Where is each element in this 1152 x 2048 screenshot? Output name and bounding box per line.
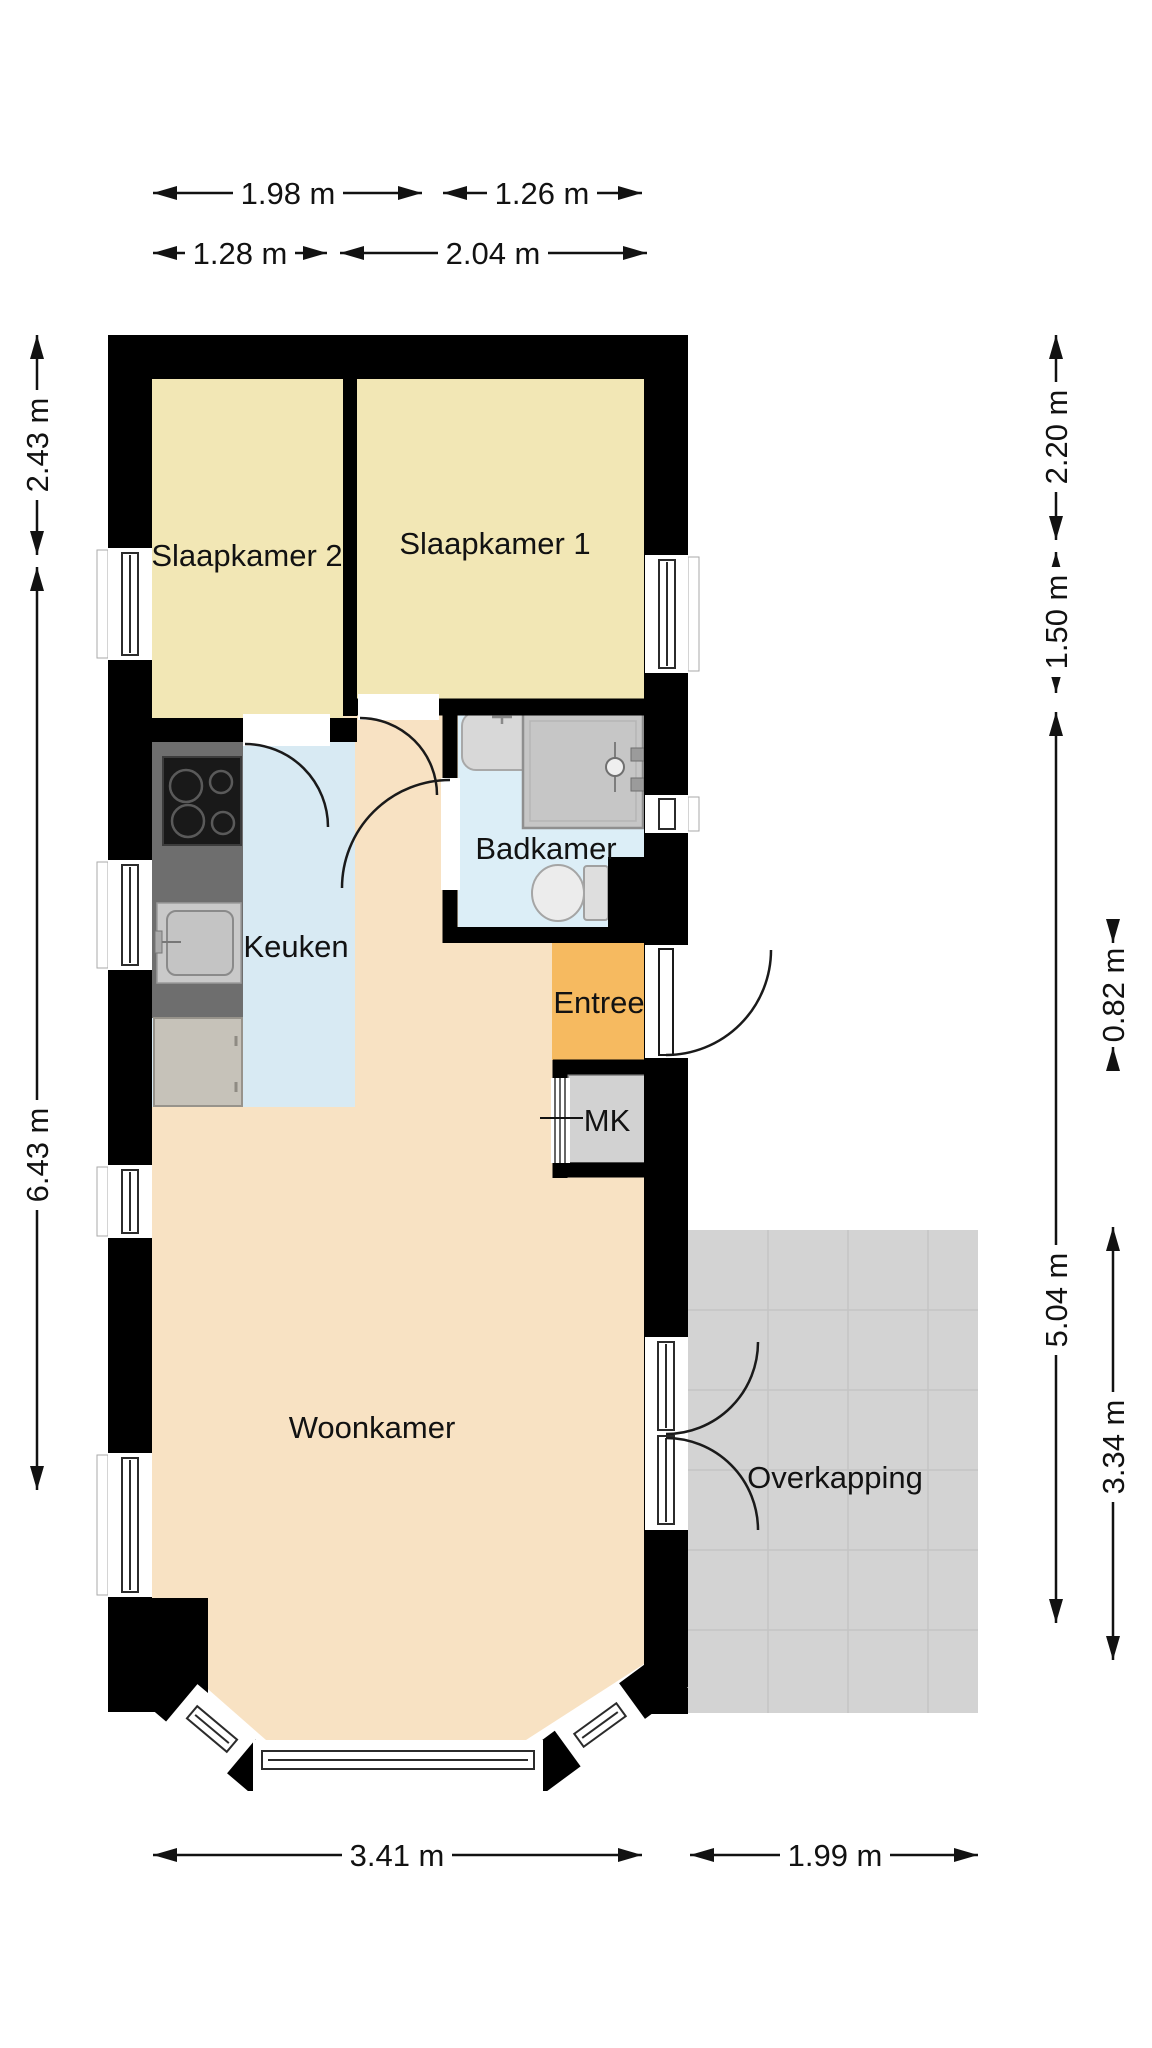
dim-right-canopy: 3.34 m: [1096, 1227, 1131, 1660]
toilet-icon: [532, 865, 608, 921]
dim-right-mid: 1.50 m: [1039, 552, 1074, 693]
window-left-4: [97, 1453, 152, 1597]
door-entree: [645, 945, 771, 1058]
window-left-3: [97, 1165, 152, 1238]
svg-text:5.04 m: 5.04 m: [1039, 1253, 1074, 1348]
svg-text:1.26 m: 1.26 m: [495, 176, 590, 211]
label-woonkamer: Woonkamer: [289, 1410, 456, 1445]
dim-top-row1-right: 1.26 m: [443, 176, 642, 211]
kitchen-sink-icon: [155, 903, 241, 983]
shower-icon: [523, 714, 644, 828]
label-slaapkamer2: Slaapkamer 2: [151, 538, 342, 573]
label-slaapkamer1: Slaapkamer 1: [399, 526, 590, 561]
label-mk: MK: [584, 1103, 631, 1138]
dim-right-upper: 2.20 m: [1039, 335, 1074, 540]
label-entree: Entree: [553, 985, 644, 1020]
dim-top-row2-right: 2.04 m: [340, 236, 647, 271]
kitchen-cabinet: [154, 1018, 242, 1106]
dim-top-row2-left: 1.28 m: [153, 236, 327, 271]
dim-top-row1-left: 1.98 m: [153, 176, 422, 211]
svg-text:6.43 m: 6.43 m: [20, 1108, 55, 1203]
window-bay-front: [253, 1740, 543, 1792]
dim-left-lower: 6.43 m: [20, 567, 55, 1490]
svg-text:3.34 m: 3.34 m: [1096, 1400, 1131, 1495]
dim-bottom-left: 3.41 m: [153, 1838, 642, 1873]
label-overkapping: Overkapping: [747, 1460, 923, 1495]
bay-right-pillar: [644, 1688, 688, 1714]
window-right-badkamer: [645, 795, 699, 833]
svg-text:1.99 m: 1.99 m: [788, 1838, 883, 1873]
dim-bottom-right: 1.99 m: [690, 1838, 978, 1873]
dim-right-small: 0.82 m: [1096, 922, 1131, 1068]
window-left-1: [97, 548, 152, 660]
svg-text:1.98 m: 1.98 m: [241, 176, 336, 211]
dim-left-upper: 2.43 m: [20, 335, 55, 555]
svg-text:2.43 m: 2.43 m: [20, 398, 55, 493]
floor-plan: Slaapkamer 2 Slaapkamer 1 Badkamer Keuke…: [0, 0, 1152, 2048]
svg-text:1.28 m: 1.28 m: [193, 236, 288, 271]
cooktop-icon: [163, 757, 241, 845]
door-mk: [551, 1078, 570, 1163]
label-keuken: Keuken: [243, 929, 348, 964]
svg-text:3.41 m: 3.41 m: [350, 1838, 445, 1873]
svg-text:1.50 m: 1.50 m: [1039, 575, 1074, 670]
window-right-slaapkamer1: [645, 555, 699, 673]
kitchen-fixtures: [152, 742, 243, 1106]
window-left-2: [97, 860, 152, 970]
svg-text:0.82 m: 0.82 m: [1096, 948, 1131, 1043]
label-badkamer: Badkamer: [475, 831, 616, 866]
dim-right-lower: 5.04 m: [1039, 712, 1074, 1623]
bathroom-duct-wall: [608, 857, 645, 928]
svg-text:2.04 m: 2.04 m: [446, 236, 541, 271]
svg-text:2.20 m: 2.20 m: [1039, 390, 1074, 485]
